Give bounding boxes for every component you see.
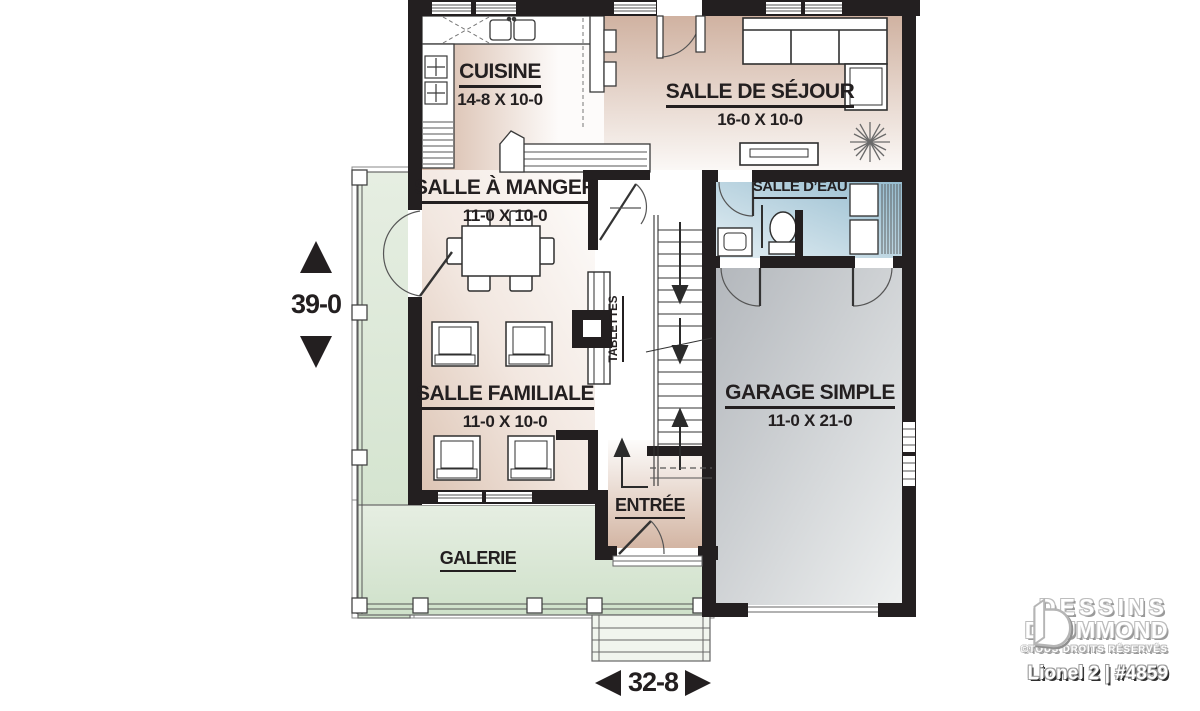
eau-name: SALLE D’EAU (753, 179, 848, 199)
room-label-galerie: GALERIE (418, 549, 538, 572)
dim-arrow-right-icon (685, 670, 711, 696)
closet-hatch (882, 184, 900, 254)
dimension-depth: 39-0 (283, 241, 349, 368)
entree-name: ENTRÉE (615, 496, 685, 519)
branding-block: DESSINS DRUMMOND ©TOUS DROITS RÉSERVÉS L… (1021, 596, 1168, 685)
sejour-name: SALLE DE SÉJOUR (666, 81, 855, 108)
brand-model: Lionel 2 | #4859 (1021, 663, 1168, 685)
sejour-dims: 16-0 X 10-0 (630, 111, 890, 129)
room-label-sejour: SALLE DE SÉJOUR 16-0 X 10-0 (630, 81, 890, 129)
room-label-entree: ENTRÉE (595, 496, 705, 519)
garage-dims: 11-0 X 21-0 (700, 412, 920, 430)
cuisine-name: CUISINE (459, 61, 541, 88)
depth-value: 39-0 (291, 289, 341, 320)
room-label-manger: SALLE À MANGER 11-0 X 10-0 (395, 177, 615, 225)
tv-console (740, 143, 818, 165)
dim-arrow-up-icon (300, 241, 332, 273)
drummond-logo-icon (1021, 596, 1075, 650)
familiale-dims: 11-0 X 10-0 (395, 413, 615, 431)
brand-row: DESSINS DRUMMOND (1021, 596, 1168, 642)
dim-arrow-down-icon (300, 336, 332, 368)
manger-dims: 11-0 X 10-0 (395, 207, 615, 225)
room-label-cuisine: CUISINE 14-8 X 10-0 (410, 61, 590, 109)
manger-name: SALLE À MANGER (414, 177, 596, 204)
floorplan-drawing (0, 0, 1200, 711)
cuisine-dims: 14-8 X 10-0 (410, 91, 590, 109)
dimension-width: 32-8 (578, 667, 728, 698)
garage-overhead-door (748, 605, 878, 615)
room-label-tablettes: TABLETTES (604, 279, 620, 379)
floorplan-page: CUISINE 14-8 X 10-0 SALLE DE SÉJOUR 16-0… (0, 0, 1200, 711)
porch-steps (592, 615, 710, 661)
tablettes-name: TABLETTES (608, 296, 624, 363)
width-value: 32-8 (628, 667, 678, 698)
galerie-name: GALERIE (440, 549, 517, 572)
dim-arrow-left-icon (595, 670, 621, 696)
room-label-garage: GARAGE SIMPLE 11-0 X 21-0 (700, 382, 920, 430)
garage-name: GARAGE SIMPLE (725, 382, 895, 409)
familiale-name: SALLE FAMILIALE (416, 383, 594, 410)
room-label-familiale: SALLE FAMILIALE 11-0 X 10-0 (395, 383, 615, 431)
room-label-eau: SALLE D’EAU (745, 179, 855, 199)
